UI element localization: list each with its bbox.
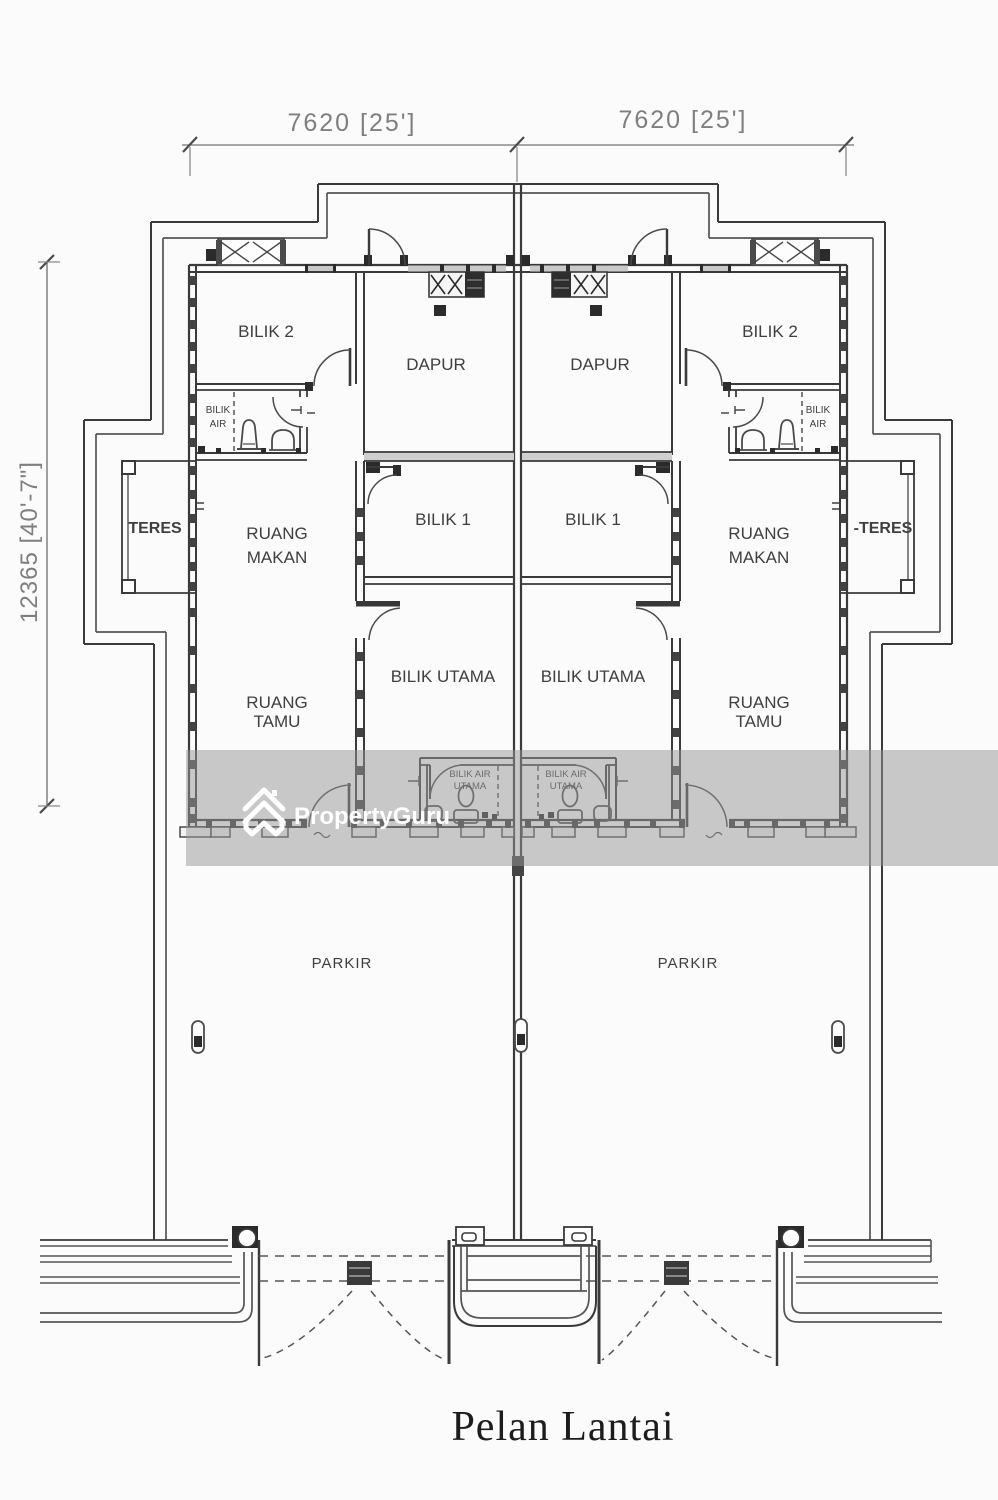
svg-text:PropertyGuru: PropertyGuru [294,803,450,830]
svg-text:DAPUR: DAPUR [570,355,630,374]
svg-text:TAMU: TAMU [254,712,301,731]
svg-text:TERES: TERES [128,520,182,537]
svg-text:7620 [25']: 7620 [25'] [287,109,416,137]
svg-text:BILIK: BILIK [806,405,831,416]
svg-text:RUANG: RUANG [728,693,789,712]
svg-text:BILIK 2: BILIK 2 [238,322,294,341]
svg-text:7620 [25']: 7620 [25'] [618,106,747,134]
svg-text:PARKIR: PARKIR [312,955,373,972]
svg-text:BILIK 2: BILIK 2 [742,322,798,341]
svg-text:RUANG: RUANG [728,524,789,543]
svg-text:BILIK UTAMA: BILIK UTAMA [391,667,496,686]
svg-text:-TERES: -TERES [854,520,913,537]
svg-text:BILIK UTAMA: BILIK UTAMA [541,667,646,686]
svg-text:TAMU: TAMU [736,712,783,731]
svg-text:PARKIR: PARKIR [658,955,719,972]
svg-text:RUANG: RUANG [246,524,307,543]
svg-text:AIR: AIR [210,419,227,430]
svg-text:DAPUR: DAPUR [406,355,466,374]
svg-text:Pelan Lantai: Pelan Lantai [451,1404,674,1450]
svg-text:RUANG: RUANG [246,693,307,712]
svg-text:BILIK: BILIK [206,405,231,416]
svg-text:MAKAN: MAKAN [247,548,307,567]
svg-text:12365 [40'-7"]: 12365 [40'-7"] [16,461,43,623]
svg-text:BILIK 1: BILIK 1 [565,510,621,529]
svg-text:AIR: AIR [810,419,827,430]
svg-text:MAKAN: MAKAN [729,548,789,567]
svg-text:BILIK 1: BILIK 1 [415,510,471,529]
